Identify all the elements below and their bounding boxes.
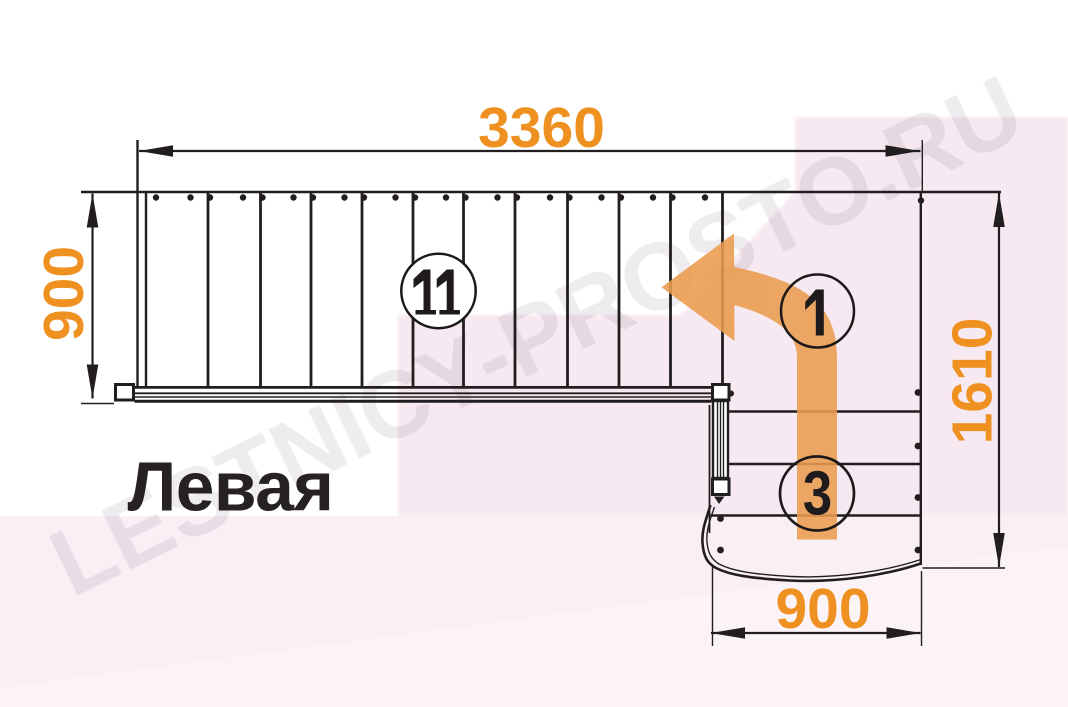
- svg-text:3: 3: [803, 460, 832, 529]
- svg-text:1610: 1610: [941, 318, 1005, 445]
- svg-text:3360: 3360: [478, 96, 605, 160]
- svg-text:Левая: Левая: [128, 448, 334, 526]
- svg-text:900: 900: [32, 246, 96, 341]
- svg-text:900: 900: [775, 577, 870, 641]
